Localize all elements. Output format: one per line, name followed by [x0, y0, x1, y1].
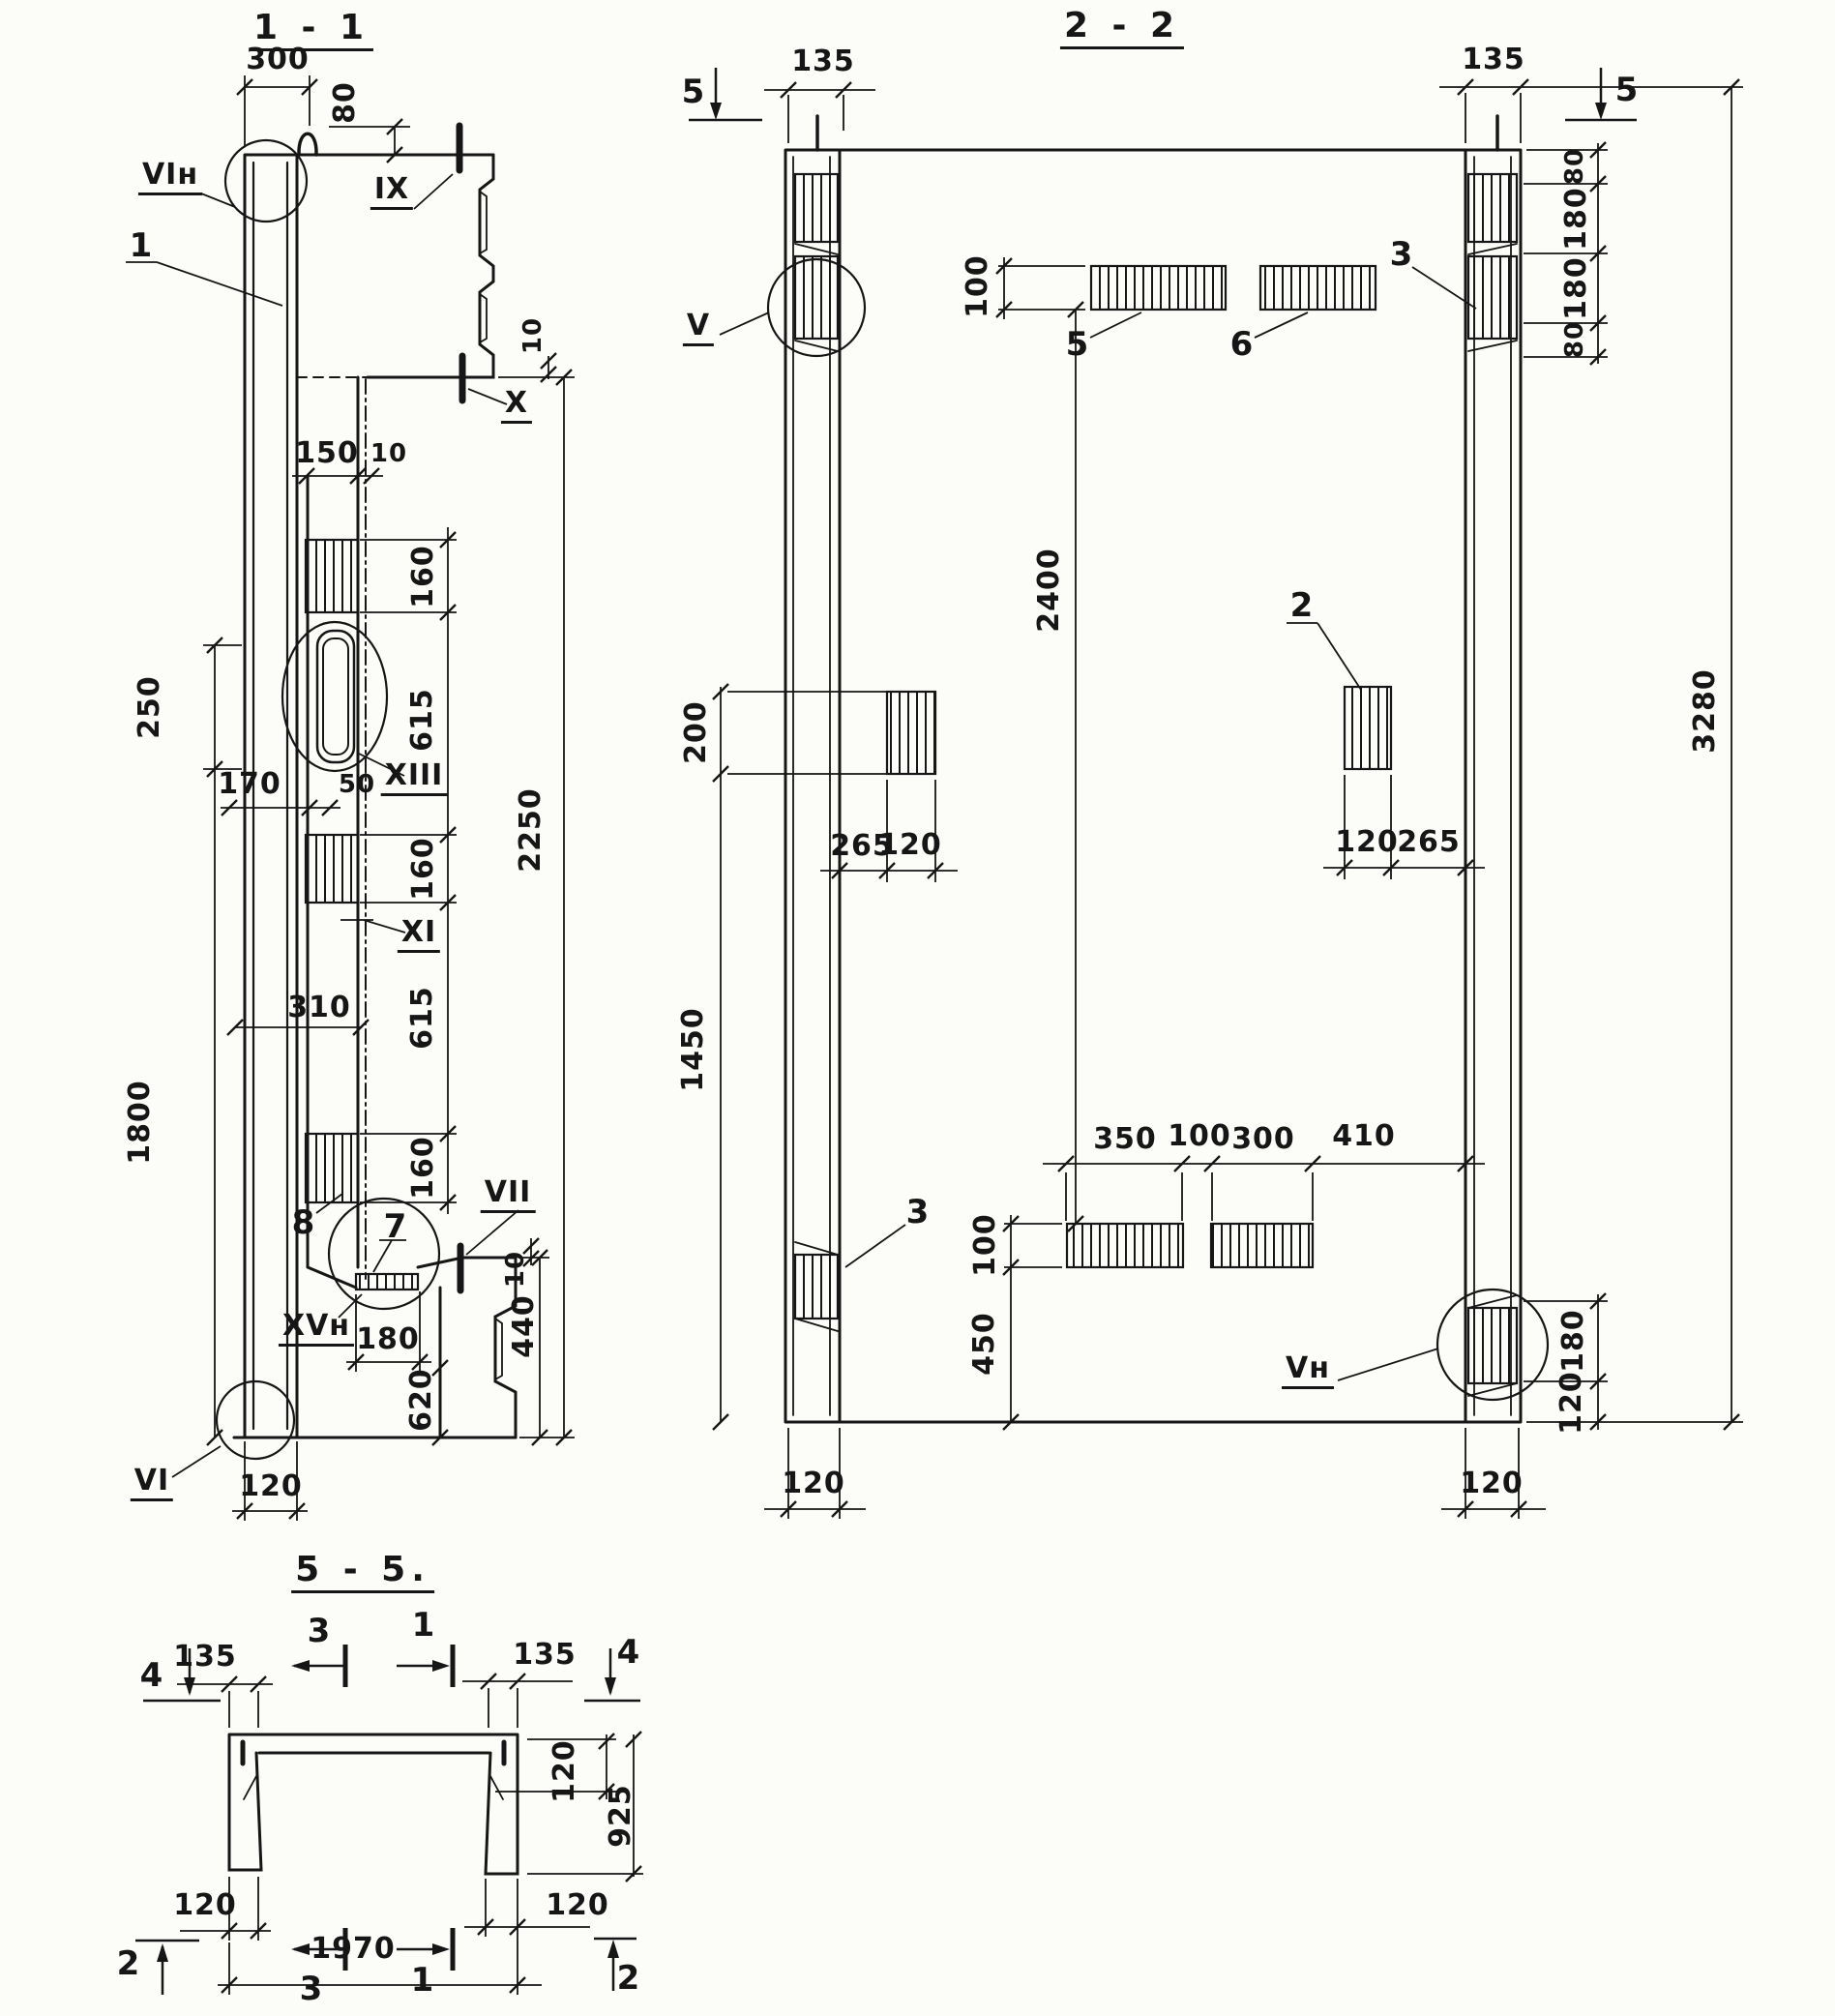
- dim-100-b1: 100: [1168, 1122, 1231, 1151]
- dim-120-left: 120: [878, 831, 942, 860]
- dim-80-r1: 80: [1562, 148, 1587, 185]
- label-XIII: XIII: [381, 761, 448, 796]
- callout-3-bl: 3: [906, 1196, 931, 1229]
- dim-135-left: 135: [791, 47, 855, 76]
- dim-10-key: 10: [370, 441, 407, 466]
- dim-10-bottom: 10: [503, 1251, 528, 1288]
- dim-2250: 2250: [517, 787, 546, 873]
- dim-120-br55: 120: [546, 1891, 609, 1920]
- dim-450: 450: [970, 1312, 999, 1376]
- dim-80-r2: 80: [1562, 321, 1587, 358]
- dim-135-r55: 135: [513, 1641, 577, 1670]
- marker-5-left: 5: [682, 75, 706, 108]
- marker-2-left: 2: [117, 1947, 141, 1980]
- dim-1450: 1450: [679, 1007, 708, 1092]
- dim-120-s11: 120: [239, 1472, 303, 1501]
- label-X: X: [501, 389, 532, 424]
- section-5-5-title: 5 - 5.: [291, 1553, 434, 1593]
- dim-150: 150: [295, 439, 359, 468]
- dim-80-top: 80: [331, 81, 360, 124]
- dim-300: 300: [246, 45, 310, 74]
- dim-160-a: 160: [409, 545, 438, 608]
- dim-120-bL: 120: [782, 1469, 845, 1498]
- dim-1800: 1800: [126, 1080, 155, 1165]
- marker-4-right: 4: [617, 1636, 641, 1669]
- marker-3-bottom: 3: [300, 1972, 324, 2005]
- dim-310: 310: [287, 993, 351, 1023]
- dim-615-a: 615: [408, 688, 437, 752]
- dim-350: 350: [1093, 1125, 1157, 1154]
- callout-5: 5: [1066, 328, 1090, 361]
- dim-2400: 2400: [1035, 548, 1064, 633]
- dim-135-l55: 135: [173, 1643, 237, 1672]
- callout-7: 7: [384, 1210, 408, 1243]
- label-IX: IX: [370, 175, 413, 210]
- dim-120-right: 120: [1335, 828, 1399, 857]
- dim-100-b2: 100: [971, 1213, 1000, 1277]
- marker-3-top: 3: [308, 1615, 332, 1647]
- callout-1: 1: [130, 229, 154, 262]
- dim-3280: 3280: [1691, 668, 1720, 754]
- dim-180-r2: 180: [1562, 256, 1591, 320]
- callout-8: 8: [292, 1206, 316, 1239]
- dim-170: 170: [218, 770, 281, 799]
- callout-2: 2: [1290, 589, 1315, 622]
- marker-1-top: 1: [412, 1609, 436, 1642]
- dim-265-right: 265: [1397, 828, 1461, 857]
- dim-180-r1: 180: [1562, 187, 1591, 251]
- dim-120-vert: 120: [550, 1739, 579, 1803]
- marker-4-left: 4: [140, 1659, 164, 1692]
- dim-160-b: 160: [409, 837, 438, 901]
- dim-135-right: 135: [1462, 45, 1525, 74]
- dim-620: 620: [407, 1368, 436, 1432]
- dim-250: 250: [135, 675, 164, 739]
- dim-180-br: 180: [1559, 1309, 1588, 1373]
- label-XVn: XVн: [279, 1312, 354, 1347]
- drawing-sheet: 1 - 130080VIнIX110X15010160250615XIII170…: [0, 0, 1835, 2016]
- dim-120-bl55: 120: [173, 1891, 237, 1920]
- callout-3-top: 3: [1390, 238, 1414, 271]
- label-VII: VII: [481, 1178, 536, 1213]
- label-VI: VI: [131, 1467, 173, 1501]
- label-V: V: [683, 311, 714, 346]
- dim-925: 925: [607, 1784, 636, 1848]
- dim-440: 440: [510, 1294, 539, 1358]
- label-XI: XI: [398, 918, 440, 953]
- marker-1-bottom: 1: [411, 1964, 435, 1997]
- dim-180-s11: 180: [356, 1325, 420, 1354]
- dim-100-top: 100: [963, 254, 992, 318]
- dim-160-c: 160: [409, 1136, 438, 1200]
- dim-615-b: 615: [408, 986, 437, 1050]
- dim-120-bR: 120: [1460, 1469, 1524, 1498]
- dim-300-s22: 300: [1231, 1125, 1295, 1154]
- label-VIn: VIн: [138, 161, 202, 195]
- section-2-2-title: 2 - 2: [1060, 9, 1184, 49]
- dim-50: 50: [339, 772, 375, 797]
- label-Vn: Vн: [1282, 1354, 1334, 1389]
- annotation-layer: 1 - 130080VIнIX110X15010160250615XIII170…: [0, 0, 1835, 2016]
- dim-120-br: 120: [1557, 1371, 1586, 1435]
- dim-410: 410: [1332, 1122, 1396, 1151]
- callout-6: 6: [1230, 328, 1255, 361]
- marker-2-right: 2: [617, 1962, 641, 1995]
- dim-10-flange: 10: [520, 317, 546, 354]
- dim-1970: 1970: [311, 1935, 396, 1964]
- marker-5-right: 5: [1615, 74, 1640, 106]
- dim-200: 200: [682, 700, 711, 764]
